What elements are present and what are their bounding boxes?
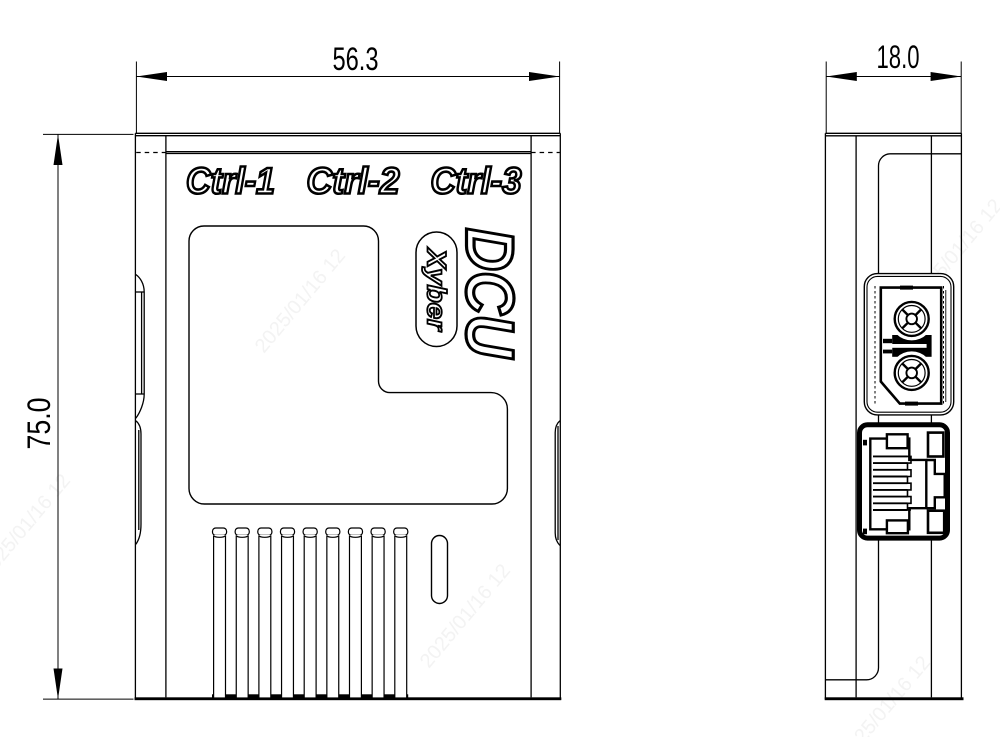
svg-text:Ctrl-1: Ctrl-1: [186, 161, 275, 202]
svg-text:75.0: 75.0: [21, 398, 57, 450]
svg-text:56.3: 56.3: [333, 41, 379, 77]
svg-text:Ctrl-3: Ctrl-3: [431, 161, 522, 202]
svg-text:Ctrl-2: Ctrl-2: [307, 161, 400, 202]
svg-text:18.0: 18.0: [877, 39, 920, 75]
svg-text:DCU: DCU: [452, 228, 528, 360]
svg-text:Xyber: Xyber: [422, 246, 452, 332]
